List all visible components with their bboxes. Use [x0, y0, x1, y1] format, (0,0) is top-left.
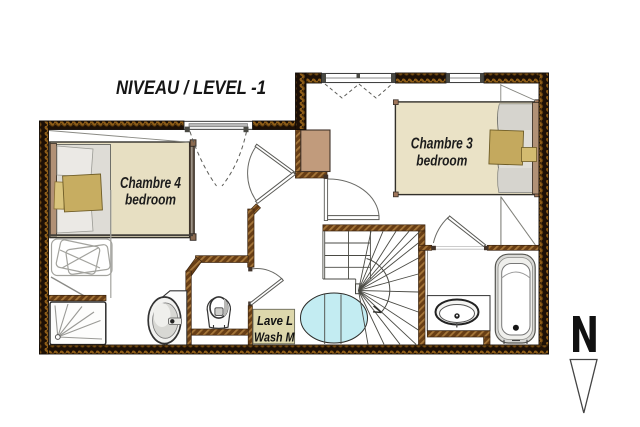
svg-text:Lave L: Lave L	[257, 313, 293, 328]
svg-text:bedroom: bedroom	[125, 193, 176, 209]
svg-text:NIVEAU / LEVEL -1: NIVEAU / LEVEL -1	[116, 77, 266, 99]
svg-text:Chambre 3: Chambre 3	[411, 136, 473, 153]
svg-text:Chambre 4: Chambre 4	[120, 175, 181, 192]
svg-text:Wash M: Wash M	[254, 330, 295, 345]
svg-text:bedroom: bedroom	[416, 154, 467, 170]
